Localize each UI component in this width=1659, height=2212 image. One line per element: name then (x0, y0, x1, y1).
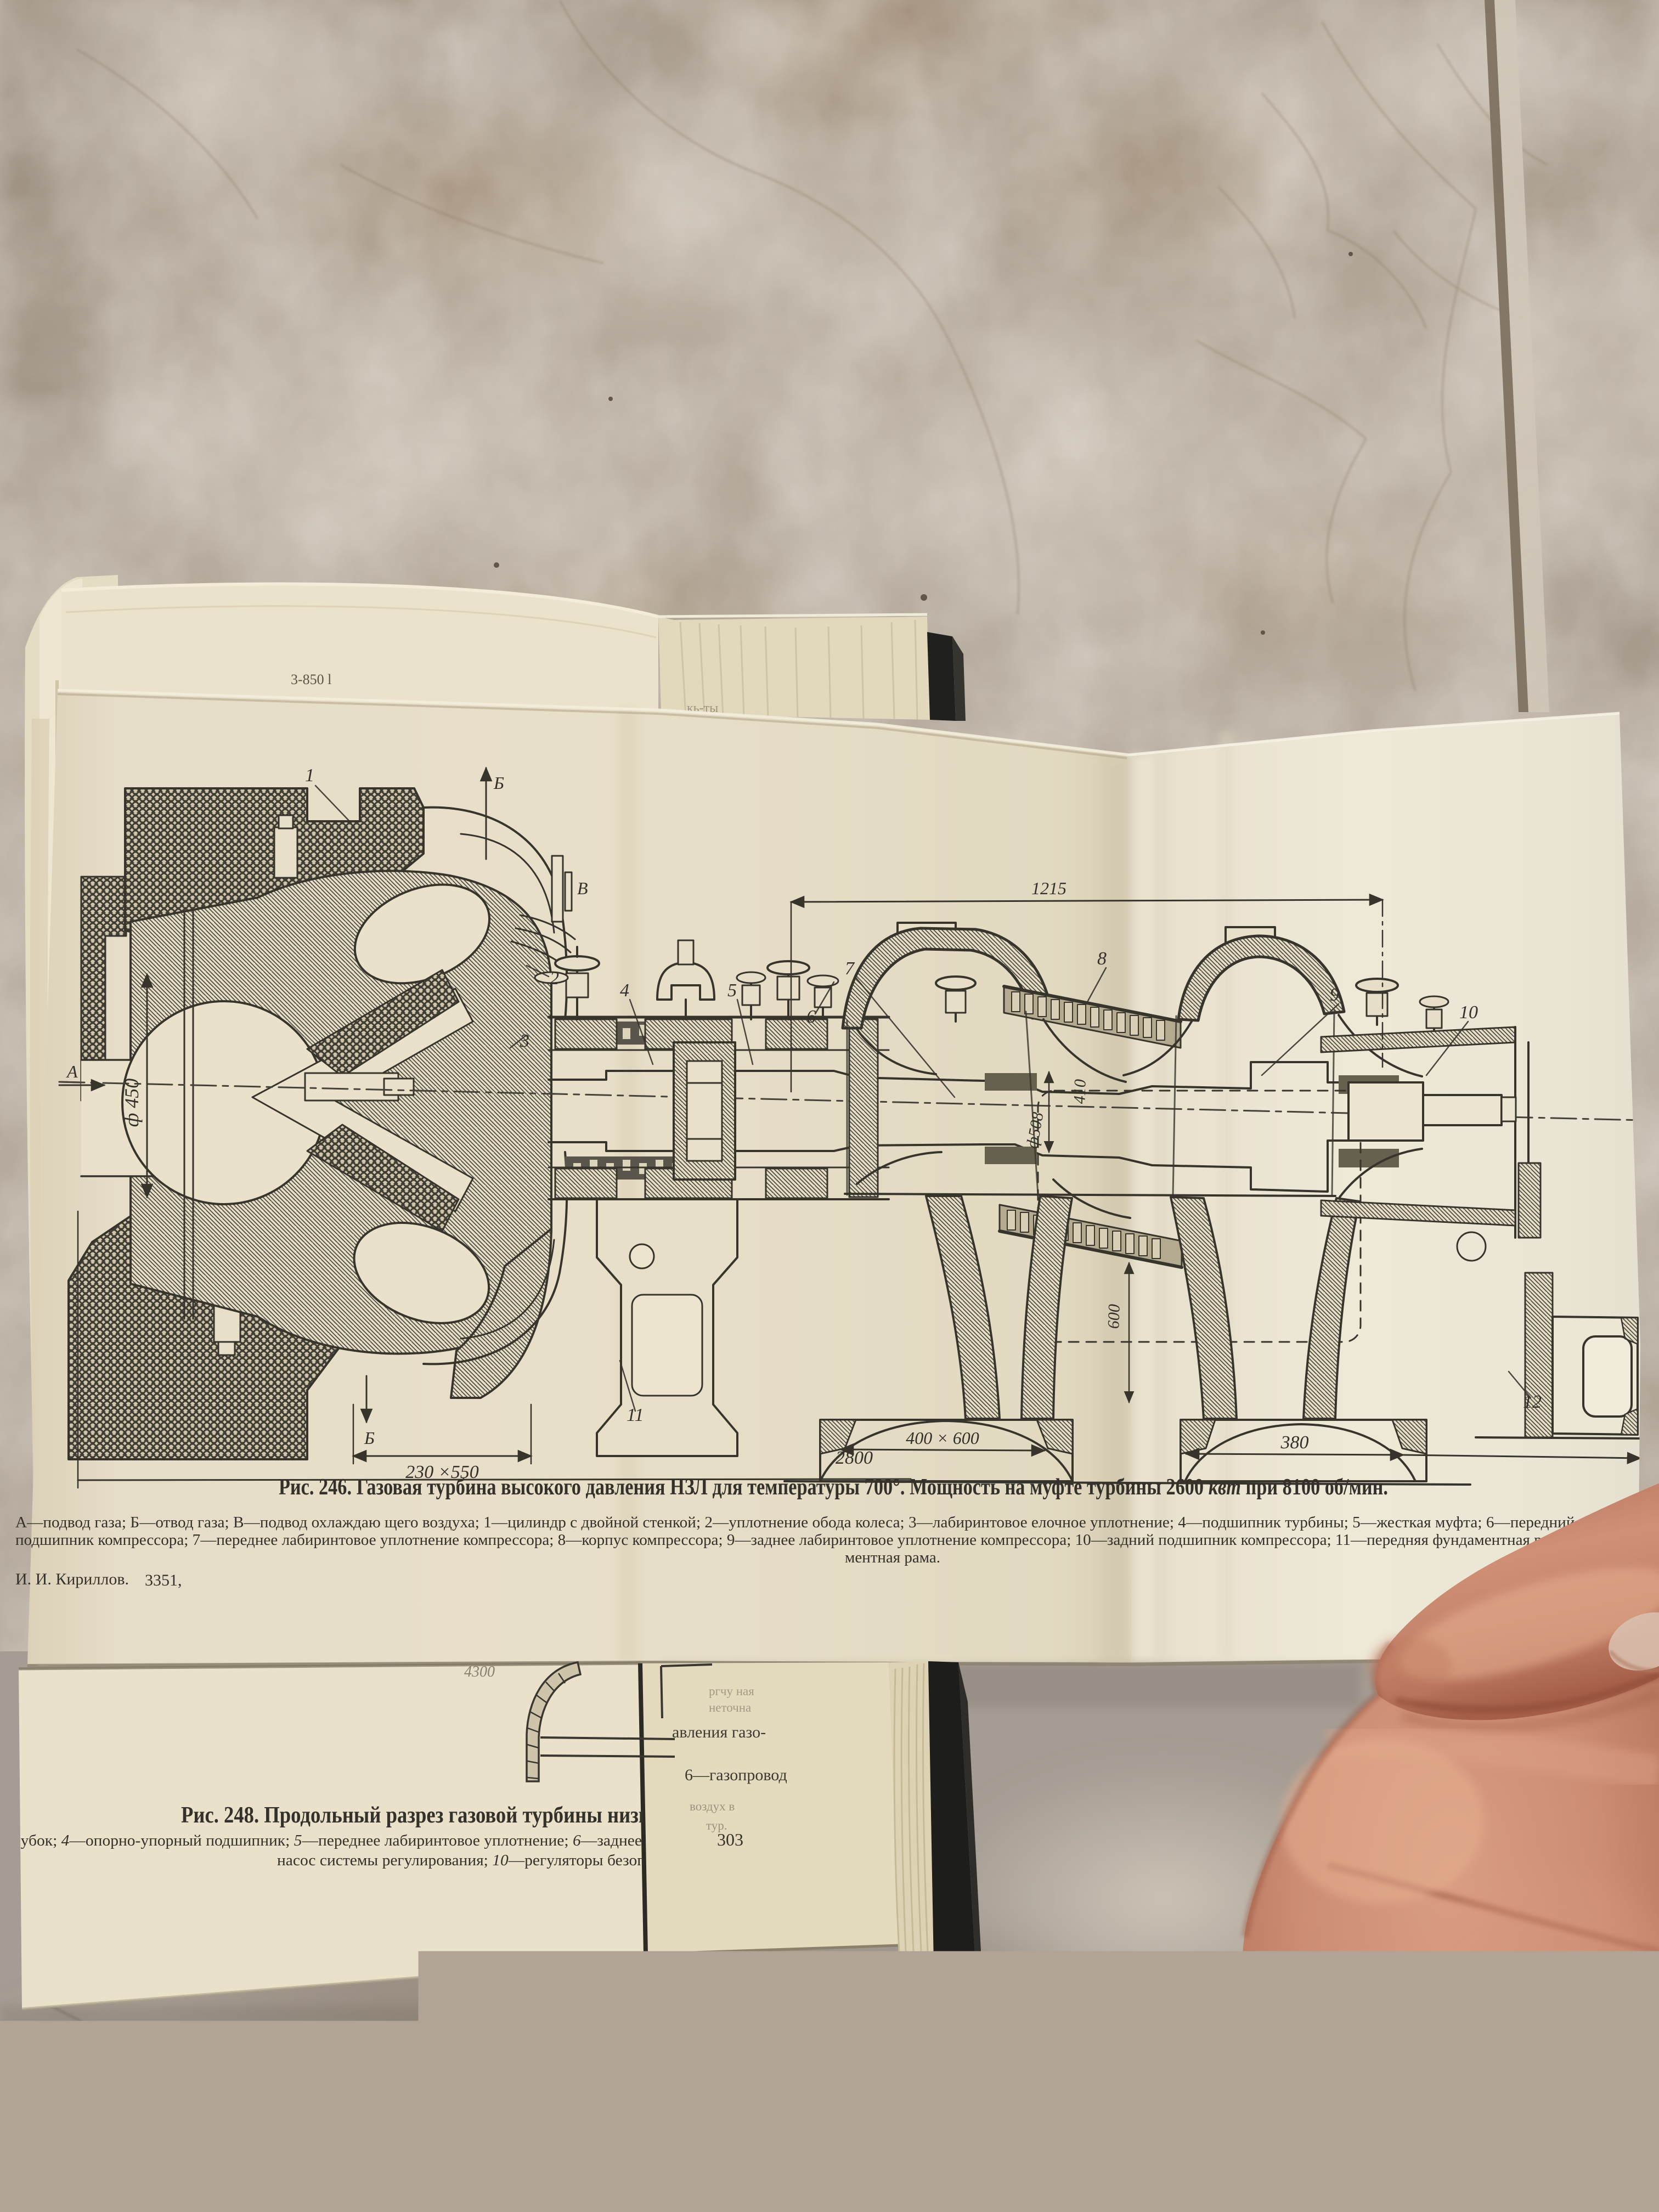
svg-text:3351,: 3351, (145, 1571, 182, 1589)
svg-text:Рис. 248. Продольный разрез га: Рис. 248. Продольный разрез газовой турб… (181, 1803, 651, 1828)
svg-text:6—газопровод: 6—газопровод (685, 1766, 787, 1784)
svg-text:А—подвод газа; Б—отвод газа; В: А—подвод газа; Б—отвод газа; В—подвод ох… (15, 1514, 1620, 1531)
svg-text:4: 4 (620, 980, 629, 1001)
svg-text:1215: 1215 (1031, 878, 1066, 898)
svg-text:Рис. 246. Газовая турбина высо: Рис. 246. Газовая турбина высокого давле… (279, 1475, 1388, 1500)
svg-text:4300: 4300 (464, 1663, 495, 1680)
svg-text:Б: Б (493, 773, 504, 793)
svg-text:В: В (577, 878, 588, 898)
svg-text:трубок; 4—опорно-упорный подш: трубок; 4—опорно-упорный подшипник; 5—пе… (5, 1832, 642, 1849)
svg-text:3: 3 (520, 1031, 529, 1051)
svg-text:303: 303 (717, 1830, 743, 1849)
svg-text:А: А (66, 1062, 78, 1081)
svg-text:подшипник компрессора; 7—перед: подшипник компрессора; 7—переднее лабири… (15, 1531, 1620, 1549)
svg-text:7: 7 (845, 958, 855, 979)
svg-text:ментная рама.: ментная рама. (845, 1549, 940, 1566)
svg-text:воздух в: воздух в (690, 1799, 735, 1813)
svg-text:3-850 l: 3-850 l (291, 672, 331, 687)
svg-text:380: 380 (1280, 1432, 1309, 1453)
svg-text:ргчу ная: ргчу ная (709, 1684, 754, 1698)
svg-text:Б: Б (364, 1428, 375, 1448)
svg-text:600: 600 (1104, 1304, 1124, 1329)
svg-text:1: 1 (305, 765, 314, 786)
svg-text:8: 8 (1097, 949, 1107, 969)
svg-text:12: 12 (1523, 1392, 1542, 1412)
svg-text:тур.: тур. (706, 1819, 727, 1832)
svg-text:ф 450: ф 450 (121, 1079, 143, 1127)
svg-text:авления газо-: авления газо- (672, 1723, 766, 1741)
svg-text:2800: 2800 (836, 1448, 873, 1468)
svg-text:неточна: неточна (709, 1701, 751, 1714)
svg-text:410: 410 (1070, 1079, 1090, 1104)
svg-text:И. И. Кириллов.: И. И. Кириллов. (15, 1570, 129, 1588)
svg-text:6: 6 (806, 1007, 816, 1027)
svg-text:2: 2 (550, 968, 559, 989)
svg-text:насос системы регулирования;: насос системы регулирования; 10—регулято… (277, 1852, 646, 1869)
svg-text:10: 10 (1459, 1002, 1478, 1023)
svg-text:5: 5 (727, 980, 737, 1001)
svg-text:11: 11 (627, 1405, 644, 1425)
svg-text:400 × 600: 400 × 600 (906, 1428, 979, 1448)
svg-text:9: 9 (1330, 985, 1339, 1005)
